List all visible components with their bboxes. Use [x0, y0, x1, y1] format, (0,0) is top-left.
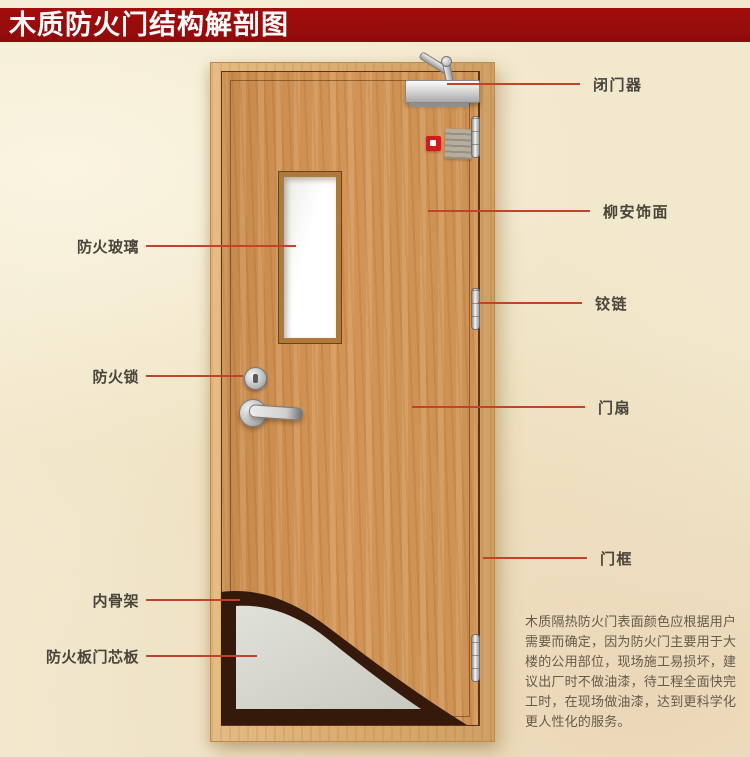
description-line: 楼的公用部位，现场施工易损坏，建 — [525, 652, 740, 672]
poster: 木质防火门结构解剖图 — [0, 0, 750, 757]
fire-board-core-shape — [236, 606, 421, 709]
leader-line — [428, 210, 590, 212]
callout-fire-lock: 防火锁 — [35, 366, 243, 386]
leader-line — [447, 83, 580, 85]
callout-label: 门扇 — [598, 397, 631, 418]
lock-cylinder — [244, 367, 267, 390]
callout-label: 防火板门芯板 — [35, 646, 146, 667]
callout-hinge: 铰链 — [478, 293, 628, 313]
leader-line — [478, 302, 582, 304]
vision-glass-panel — [279, 172, 341, 343]
page-title: 木质防火门结构解剖图 — [0, 8, 750, 42]
callout-door-frame: 门框 — [483, 548, 633, 568]
description-line: 议出厂时不做油漆，待工程全面快完 — [525, 672, 740, 692]
callout-label: 内骨架 — [35, 590, 146, 611]
cutaway-section — [221, 586, 471, 725]
callout-label: 铰链 — [595, 293, 628, 314]
description-line: 工时，在现场做油漆，达到更科学化 — [525, 692, 740, 712]
leader-line — [146, 375, 243, 377]
callout-door-closer: 闭门器 — [447, 74, 643, 94]
callout-label: 闭门器 — [593, 74, 643, 95]
callout-label: 防火玻璃 — [35, 236, 146, 257]
leader-line — [146, 599, 240, 601]
fire-rating-label — [426, 136, 441, 151]
callout-inner-skeleton: 内骨架 — [35, 590, 240, 610]
callout-label: 柳安饰面 — [603, 201, 669, 222]
hinge-top — [471, 116, 480, 158]
hinge-bottom — [471, 634, 480, 682]
callout-lauan-veneer: 柳安饰面 — [428, 201, 669, 221]
callout-door-leaf: 门扇 — [412, 397, 631, 417]
description-line: 需要而确定，因为防火门主要用于大 — [525, 632, 740, 652]
description-line: 木质隔热防火门表面颜色应根据用户 — [525, 612, 740, 632]
callout-fire-glass: 防火玻璃 — [35, 236, 296, 256]
description-text: 木质隔热防火门表面颜色应根据用户 需要而确定，因为防火门主要用于大 楼的公用部位… — [525, 612, 740, 732]
leader-line — [412, 406, 585, 408]
title-banner: 木质防火门结构解剖图 — [0, 8, 750, 42]
callout-label: 防火锁 — [35, 366, 146, 387]
callout-fire-board-core: 防火板门芯板 — [35, 646, 257, 666]
callout-label: 门框 — [600, 548, 633, 569]
leader-line — [146, 245, 296, 247]
description-line: 更人性化的服务。 — [525, 712, 740, 732]
leader-line — [146, 655, 257, 657]
door-closer-elbow — [441, 56, 452, 67]
leader-line — [483, 557, 587, 559]
info-plate — [444, 129, 472, 160]
